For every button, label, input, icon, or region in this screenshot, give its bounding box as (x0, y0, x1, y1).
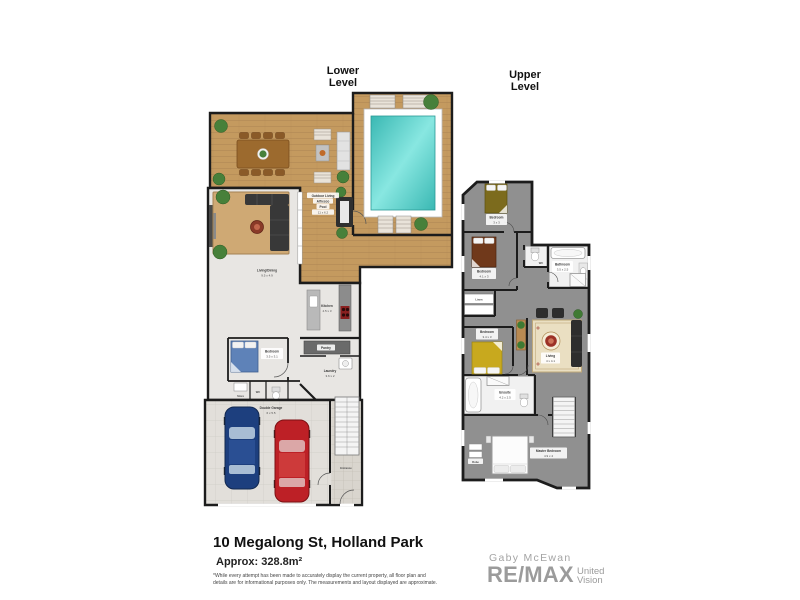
room-label: Alfresco (317, 200, 330, 204)
windshield (279, 440, 305, 452)
tv-unit (209, 205, 213, 247)
property-address: 10 Megalong St, Holland Park (213, 534, 423, 551)
room-dims: 3 x 3 (493, 220, 500, 224)
store-cupboard (234, 383, 247, 391)
room-label: Bedroom (477, 270, 491, 274)
sofa (270, 205, 289, 251)
remax-suffix-line-2: Vision (577, 575, 603, 586)
toilet (520, 398, 528, 407)
dining-chair (240, 170, 249, 176)
toilet-tank (520, 394, 528, 399)
room-label: Pool (320, 205, 327, 209)
robe-dresser: Robe (468, 444, 483, 464)
sofa (571, 320, 582, 367)
plant (424, 95, 439, 110)
room-dims: 6 x 5.5 (266, 411, 275, 415)
room-label: Robe (472, 460, 479, 464)
pillow (474, 238, 484, 244)
room-dims: 4.5 x 3 (322, 309, 331, 313)
plant (216, 190, 230, 204)
plant (337, 228, 348, 239)
bench-cushion (340, 201, 349, 223)
room-label: Ensuite (499, 391, 511, 395)
room-label: Store (237, 394, 244, 398)
floorplan-page: Lower Level Upper Level (0, 0, 800, 600)
upper-level-floorplan: Bedroom 3 x 3 Bedroom 4.1 x 3 WC (460, 168, 595, 495)
car-blue (224, 407, 260, 489)
pillow (498, 185, 507, 191)
room-dims: 4.1 x 3 (479, 274, 488, 278)
front-door-gap (340, 504, 354, 507)
room-label: Kitchen (321, 304, 333, 308)
stairs (335, 397, 359, 455)
lower-level-floorplan: Outdoor Living Alfresco Pool 11 x 6.2 (200, 85, 462, 510)
sun-lounger (314, 172, 331, 183)
upper-bedroom-3: Bedroom 3.4 x 3 (472, 329, 502, 375)
room-dims: 4 x 4.1 (546, 359, 555, 363)
dining-chair (264, 170, 273, 176)
remax-suffix: United Vision (577, 567, 604, 585)
plant (517, 321, 525, 329)
armchair (552, 308, 564, 318)
room-label: Entrance (340, 466, 352, 470)
car-roof (279, 453, 305, 477)
car-roof (229, 440, 255, 464)
sun-lounger (396, 216, 411, 233)
room-dims: 3.5 x 2.5 (557, 267, 569, 271)
room-dims: 3.5 x 3.1 (266, 355, 278, 359)
plant (574, 310, 583, 319)
sun-lounger (378, 216, 393, 233)
room-dims: 3.6 x 2 (325, 374, 334, 378)
room-dims: 4.9 x 4 (544, 454, 553, 458)
garage: Entrance (205, 397, 362, 506)
disclaimer: *While every attempt has been made to ac… (213, 573, 473, 587)
rear-window (229, 465, 255, 474)
toilet-tank (272, 387, 280, 392)
bedside-table (529, 436, 534, 443)
room-label: Bedroom (265, 350, 279, 354)
plant (213, 245, 227, 259)
room-dims: 3.4 x 3 (482, 335, 491, 339)
pillow (488, 368, 500, 374)
dining-chair (276, 170, 285, 176)
garage-door-gap (218, 504, 316, 507)
bedside-table (486, 436, 491, 443)
dining-chair (252, 133, 261, 139)
windshield (229, 427, 255, 439)
pillow (233, 342, 244, 348)
plant (337, 171, 349, 183)
disclaimer-line-1: *While every attempt has been made to ac… (213, 573, 426, 579)
dining-chair (276, 133, 285, 139)
sink (310, 296, 318, 307)
room-label: Master Bedroom (536, 449, 561, 453)
upper-bedroom-2: Bedroom 4.1 x 3 (472, 237, 496, 279)
room-dims: 4.2 x 2.5 (499, 395, 511, 399)
pillow (474, 368, 486, 374)
bowl (320, 150, 326, 156)
room-label: Double Garage (260, 406, 283, 410)
room-label: WC (256, 390, 261, 394)
remax-logo: RE/MAX (487, 562, 574, 588)
sun-lounger (370, 95, 395, 108)
plant (215, 120, 228, 133)
coffee-table-top (254, 224, 260, 230)
sun-lounger (314, 129, 331, 140)
plant (213, 173, 225, 185)
pillow (485, 238, 495, 244)
rear-window (279, 478, 305, 487)
room-label: Pantry (321, 346, 331, 350)
upper-bedroom-1: Bedroom 3 x 3 (485, 184, 507, 225)
upper-stairs (553, 397, 575, 437)
centerpiece-plant (259, 150, 266, 157)
room-dims: 11 x 6.2 (318, 211, 329, 215)
tv-screen (214, 213, 217, 239)
armchair (536, 308, 548, 318)
toilet (531, 252, 539, 261)
cooktop (341, 306, 350, 319)
room-label: Outdoor Living (312, 194, 335, 198)
room-label: Bedroom (490, 216, 504, 220)
pillow (487, 185, 496, 191)
car-red (274, 420, 310, 502)
pillow (245, 342, 256, 348)
pillow (511, 466, 526, 473)
room-label: Bedroom (480, 330, 494, 334)
pool-water (371, 116, 435, 210)
dining-chair (240, 133, 249, 139)
upper-level-title: Upper Level (494, 69, 556, 93)
pool (364, 109, 442, 217)
room-label: Living (546, 354, 555, 358)
room-label: Living/Dining (257, 269, 277, 273)
plant (415, 218, 428, 231)
disclaimer-line-2: details are for informational purposes o… (213, 580, 437, 586)
property-area: Approx: 328.8m² (216, 556, 302, 568)
dining-chair (252, 170, 261, 176)
room-label: Linen (475, 298, 483, 302)
room-label: WC (539, 261, 544, 265)
room-label: Laundry (324, 369, 337, 373)
pillow (494, 466, 509, 473)
toilet (272, 392, 279, 400)
room-label: Bathroom (555, 263, 570, 267)
sofa (245, 194, 289, 205)
toilet-tank (531, 248, 539, 253)
plant (517, 341, 525, 349)
room-dims: 9.5 x 4.9 (261, 274, 273, 278)
dining-chair (264, 133, 273, 139)
